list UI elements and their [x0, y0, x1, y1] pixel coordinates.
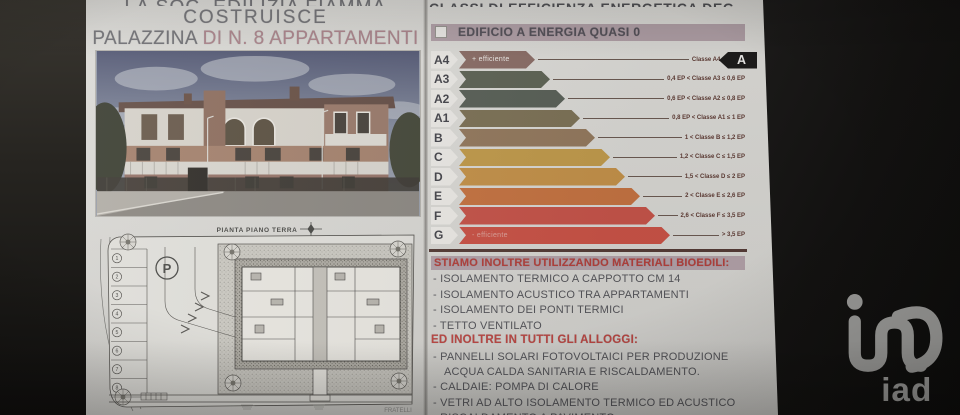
- gate: [188, 168, 208, 192]
- energy-class-row: A30,4 EP < Classe A3 ≤ 0,6 EP: [431, 71, 745, 89]
- energy-class-row: F2,6 < Classe F ≤ 3,5 EP: [431, 207, 745, 225]
- less-efficient-label: - efficiente: [459, 232, 508, 239]
- energy-range-label: 2,6 < Classe F ≤ 3,5 EP: [681, 213, 746, 219]
- parking-p-letter: P: [163, 261, 172, 276]
- energy-class-letter: A1: [431, 110, 458, 128]
- photographed-flyer: LA SOC. EDILIZIA FIAMMA COSTRUISCE PALAZ…: [0, 0, 960, 415]
- svg-text:5: 5: [116, 330, 119, 336]
- logo-wordmark: iad: [881, 372, 932, 408]
- energy-class-letter: A3: [431, 71, 458, 89]
- title-palazzina: PALAZZINA: [92, 28, 202, 49]
- energy-range-label: 1 < Classe B ≤ 1,2 EP: [685, 135, 745, 141]
- energy-class-arrow: [459, 149, 610, 167]
- checkbox-icon: [435, 26, 447, 38]
- iad-logo: iad: [842, 290, 948, 408]
- energy-class-arrow: [459, 188, 640, 206]
- leader-line: [613, 157, 677, 158]
- outbuilding: [141, 393, 167, 400]
- energy-class-letter: B: [431, 129, 458, 147]
- energy-class-arrow: [459, 110, 580, 128]
- bullet-item: - VETRI AD ALTO ISOLAMENTO TERMICO ED AC…: [433, 396, 755, 411]
- energy-banner-label: EDIFICIO A ENERGIA QUASI 0: [458, 25, 640, 39]
- units-header: ED INOLTRE IN TUTTI GLI ALLOGGI:: [431, 334, 638, 346]
- energy-class-letter: D: [431, 168, 458, 186]
- flyer-page-left: LA SOC. EDILIZIA FIAMMA COSTRUISCE PALAZ…: [86, 0, 425, 415]
- bullet-item: - RISCALDAMENTO A PAVIMENTO: [433, 411, 755, 415]
- leader-line: [583, 118, 669, 119]
- energy-class-arrow: [459, 168, 625, 186]
- materials-list: - ISOLAMENTO TERMICO A CAPPOTTO CM 14- I…: [433, 272, 755, 334]
- materials-header: STIAMO INOLTRE UTILIZZANDO MATERIALI BIO…: [431, 256, 745, 270]
- bullet-item: - ISOLAMENTO ACUSTICO TRA APPARTAMENTI: [433, 288, 755, 303]
- leader-line: [628, 176, 682, 177]
- leader-line: [538, 59, 689, 60]
- energy-indicator-letter: A: [737, 53, 746, 67]
- energy-class-row: C1,2 < Classe C ≤ 1,5 EP: [431, 149, 745, 167]
- leader-line: [658, 215, 678, 216]
- energy-class-arrow: - efficiente: [459, 227, 670, 245]
- logo-i-dot: [847, 294, 863, 310]
- flyer-paper: LA SOC. EDILIZIA FIAMMA COSTRUISCE PALAZ…: [86, 0, 778, 415]
- bullet-item: - ISOLAMENTO DEI PONTI TERMICI: [433, 303, 755, 318]
- energy-class-row: A20,6 EP < Classe A2 ≤ 0,8 EP: [431, 90, 745, 108]
- iad-logo-glyph: iad: [842, 290, 948, 408]
- company-name-cropped: LA SOC. EDILIZIA FIAMMA: [86, 0, 425, 6]
- building: [119, 87, 396, 192]
- energy-class-scale: A A4+ efficienteClasse A4 ≤ 0,4 EPA30,4 …: [431, 51, 745, 246]
- bullet-item: - CALDAIE: POMPA DI CALORE: [433, 380, 755, 395]
- energy-range-label: 0,8 EP < Classe A1 ≤ 1 EP: [672, 115, 745, 121]
- bullet-item: - ISOLAMENTO TERMICO A CAPPOTTO CM 14: [433, 272, 755, 287]
- energy-class-letter: A4: [431, 51, 458, 69]
- energy-range-label: 1,2 < Classe C ≤ 1,5 EP: [680, 154, 745, 160]
- bullet-item: - TETTO VENTILATO: [433, 319, 755, 334]
- energy-class-row: B1 < Classe B ≤ 1,2 EP: [431, 129, 745, 147]
- energy-range-label: 0,6 EP < Classe A2 ≤ 0,8 EP: [667, 96, 745, 102]
- energy-banner: EDIFICIO A ENERGIA QUASI 0: [431, 24, 745, 41]
- energy-header-cropped: CLASSI DI EFFICIENZA ENERGETICA DEGLI ED…: [429, 0, 734, 7]
- energy-class-row: E2 < Classe E ≤ 2,6 EP: [431, 188, 745, 206]
- bullet-item: - PANNELLI SOLARI FOTOVOLTAICI PER PRODU…: [433, 350, 755, 379]
- building-illustration: [96, 51, 420, 216]
- title-apartments-accent: DI N. 8 APPARTAMENTI: [203, 28, 419, 49]
- background-shadow-left: [0, 0, 88, 415]
- energy-class-letter: G: [431, 227, 458, 245]
- title-line-palazzina: PALAZZINA DI N. 8 APPARTAMENTI: [86, 28, 425, 50]
- energy-class-letter: E: [431, 188, 458, 206]
- energy-range-label: 1,5 < Classe D ≤ 2 EP: [685, 174, 745, 180]
- energy-class-row: D1,5 < Classe D ≤ 2 EP: [431, 168, 745, 186]
- energy-class-arrow: [459, 90, 565, 108]
- building-photo: [95, 50, 421, 217]
- energy-range-label: 2 < Classe E ≤ 2,6 EP: [685, 193, 745, 199]
- energy-class-letter: F: [431, 207, 458, 225]
- energy-class-letter: A2: [431, 90, 458, 108]
- energy-header-text: CLASSI DI EFFICIENZA ENERGETICA DEGLI ED…: [429, 0, 734, 7]
- svg-text:2: 2: [116, 275, 119, 281]
- energy-class-arrow: [459, 129, 595, 147]
- leader-line: [568, 98, 664, 99]
- energy-class-row: G- efficiente> 3,5 EP: [431, 227, 745, 245]
- svg-text:7: 7: [116, 367, 119, 373]
- floor-plan-drawing: PIANTA PIANO TERRA: [95, 221, 421, 413]
- energy-class-row: A4+ efficienteClasse A4 ≤ 0,4 EP: [431, 51, 745, 69]
- energy-range-label: 0,4 EP < Classe A3 ≤ 0,6 EP: [667, 76, 745, 82]
- energy-class-arrow: + efficiente: [459, 51, 535, 69]
- title-line-costruisce: COSTRUISCE: [86, 7, 425, 29]
- leader-line: [643, 196, 682, 197]
- flyer-page-right: CLASSI DI EFFICIENZA ENERGETICA DEGLI ED…: [425, 0, 778, 415]
- energy-class-letter: C: [431, 149, 458, 167]
- chart-bottom-rule: [429, 249, 747, 252]
- svg-text:1: 1: [116, 256, 119, 262]
- logo-in-stroke: [855, 322, 921, 366]
- leader-line: [673, 235, 719, 236]
- plan-cropped-text: FRATELLI: [384, 408, 412, 413]
- ground-floor-plan: PIANTA PIANO TERRA: [95, 221, 421, 413]
- walkway: [313, 369, 327, 395]
- company-name-text: LA SOC. EDILIZIA FIAMMA: [125, 0, 387, 6]
- energy-class-arrow: [459, 71, 550, 89]
- leader-line: [598, 137, 682, 138]
- plan-title: PIANTA PIANO TERRA: [217, 227, 298, 234]
- svg-text:3: 3: [116, 293, 119, 299]
- energy-class-row: A10,8 EP < Classe A1 ≤ 1 EP: [431, 110, 745, 128]
- energy-range-label: > 3,5 EP: [722, 232, 745, 238]
- units-features-list: - PANNELLI SOLARI FOTOVOLTAICI PER PRODU…: [433, 350, 755, 415]
- fence: [97, 177, 419, 191]
- energy-class-arrow: [459, 207, 655, 225]
- svg-text:4: 4: [116, 312, 119, 318]
- leader-line: [553, 79, 664, 80]
- compass-icon: [300, 222, 322, 236]
- svg-text:6: 6: [116, 349, 119, 355]
- more-efficient-label: + efficiente: [459, 56, 510, 63]
